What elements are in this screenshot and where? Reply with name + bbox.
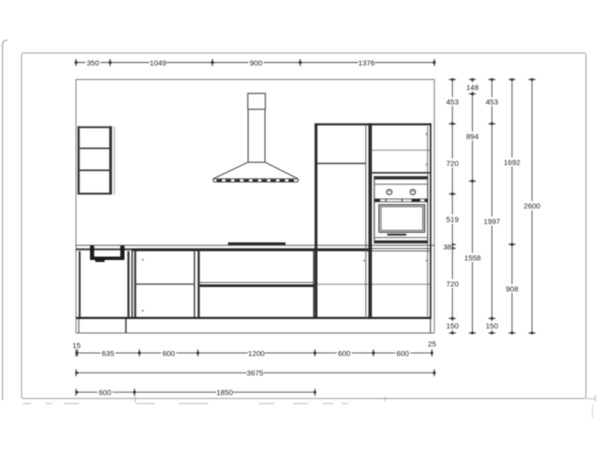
- svg-text:1200: 1200: [248, 349, 265, 358]
- svg-text:1692: 1692: [504, 158, 521, 167]
- svg-text:148: 148: [466, 83, 479, 92]
- svg-text:150: 150: [446, 322, 459, 331]
- svg-text:1997: 1997: [484, 217, 501, 226]
- svg-text:600: 600: [396, 349, 409, 358]
- svg-text:1376: 1376: [358, 58, 375, 67]
- svg-text:453: 453: [446, 97, 459, 106]
- svg-text:600: 600: [162, 349, 175, 358]
- svg-text:150: 150: [486, 322, 499, 331]
- svg-text:600: 600: [99, 388, 112, 397]
- svg-text:519: 519: [446, 215, 459, 224]
- svg-text:900: 900: [250, 58, 263, 67]
- svg-text:453: 453: [486, 97, 499, 106]
- svg-text:720: 720: [446, 159, 459, 168]
- svg-text:2600: 2600: [524, 202, 541, 211]
- svg-text:720: 720: [446, 279, 459, 288]
- svg-text:600: 600: [338, 349, 351, 358]
- svg-text:38: 38: [443, 242, 451, 251]
- svg-text:350: 350: [87, 58, 100, 67]
- svg-text:25: 25: [428, 339, 436, 348]
- svg-text:908: 908: [506, 285, 519, 294]
- svg-text:894: 894: [466, 132, 479, 141]
- svg-text:3675: 3675: [247, 369, 264, 378]
- svg-text:1049: 1049: [150, 58, 167, 67]
- svg-text:1850: 1850: [216, 388, 233, 397]
- svg-text:15: 15: [72, 341, 80, 350]
- svg-text:635: 635: [102, 349, 115, 358]
- svg-text:1558: 1558: [464, 253, 481, 262]
